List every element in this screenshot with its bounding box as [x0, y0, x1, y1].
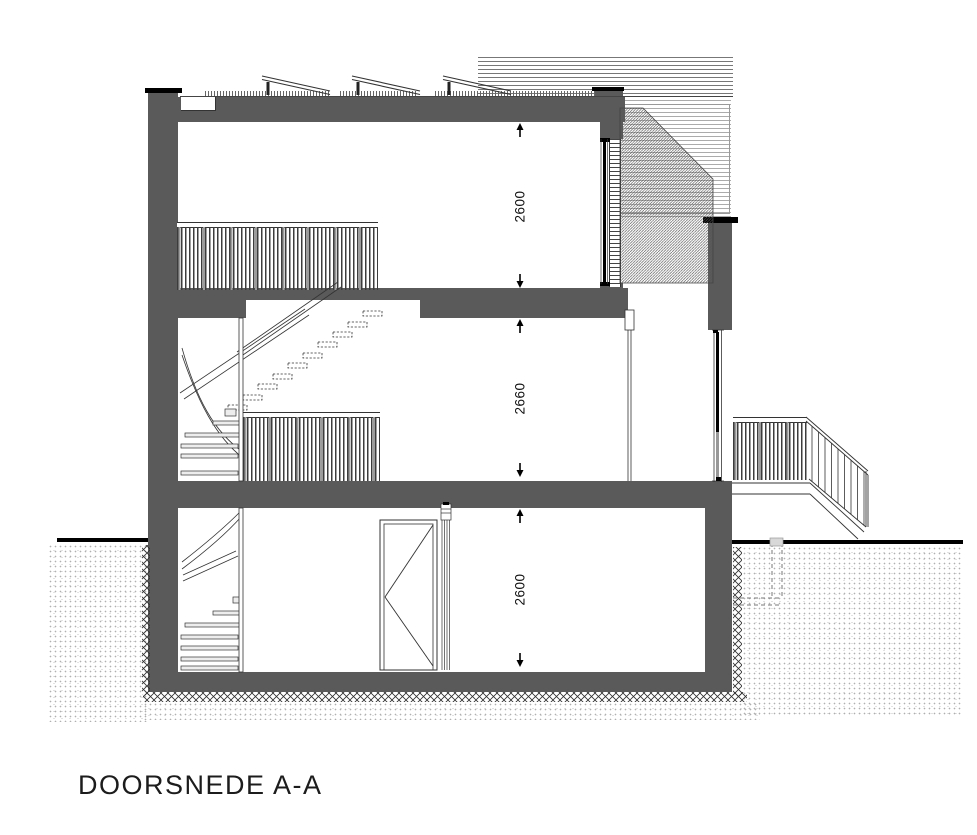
insulation-bottom: [143, 692, 747, 702]
stair-post-base: [770, 538, 783, 546]
stair-ground: [181, 508, 243, 672]
drawing-title: DOORSNEDE A-A: [78, 770, 323, 801]
solar-panel-2: [352, 76, 420, 95]
hatched-roof-volume: [620, 108, 713, 283]
void-edge-beam: [625, 310, 634, 481]
extension-door-frame: [712, 330, 724, 482]
stair-middle: [180, 282, 382, 481]
exterior-railing-sloped: [806, 417, 868, 527]
solar-panel-1: [262, 76, 330, 95]
insulation-right: [733, 547, 742, 697]
insulation-left: [142, 545, 150, 695]
section-drawing: 2600 2660 2600 DOORSNEDE A-A: [0, 0, 977, 835]
top-window-frame: [601, 139, 608, 284]
solar-panel-3: [443, 76, 511, 95]
linework: [0, 0, 977, 835]
dimension-top-floor: 2600: [513, 185, 528, 229]
dimension-ground-floor: 2600: [513, 568, 528, 612]
dimension-middle-floor: 2660: [513, 377, 528, 421]
basement-door: [380, 520, 437, 670]
basement-partition: [441, 502, 451, 670]
